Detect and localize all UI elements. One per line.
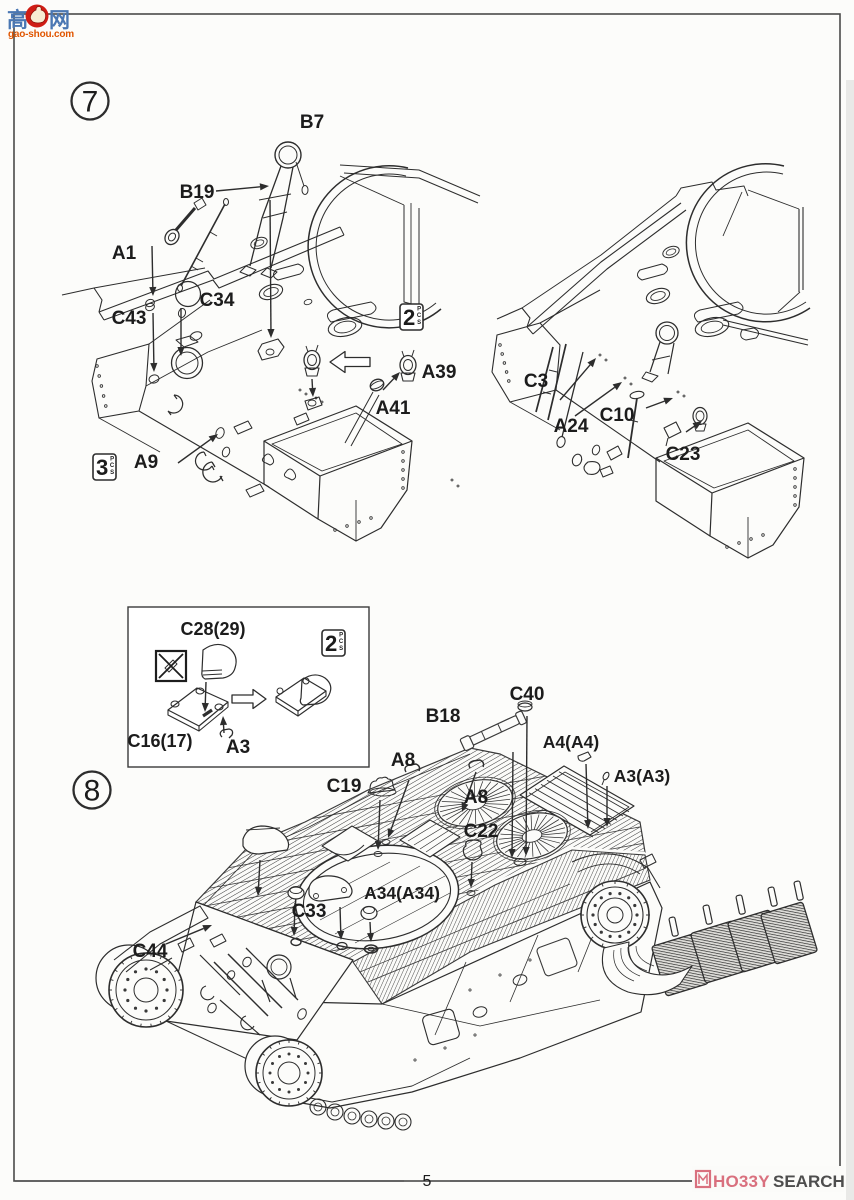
svg-text:3: 3	[96, 455, 108, 480]
svg-text:2: 2	[403, 305, 415, 330]
svg-text:S: S	[110, 470, 114, 476]
svg-text:C28(29): C28(29)	[180, 619, 245, 639]
svg-text:C: C	[339, 639, 344, 645]
svg-text:C22: C22	[464, 821, 499, 842]
svg-text:S: S	[417, 320, 421, 326]
svg-text:A39: A39	[422, 362, 457, 383]
svg-text:SEARCH: SEARCH	[773, 1172, 845, 1191]
svg-text:C33: C33	[292, 901, 327, 922]
svg-text:P: P	[110, 457, 114, 463]
svg-text:C10: C10	[600, 405, 635, 426]
svg-text:C: C	[110, 463, 115, 469]
svg-text:A8: A8	[464, 787, 488, 808]
svg-text:S: S	[339, 646, 343, 652]
svg-text:5: 5	[423, 1173, 432, 1190]
svg-text:8: 8	[84, 775, 101, 808]
svg-text:A4(A4): A4(A4)	[543, 732, 599, 752]
svg-text:C34: C34	[200, 290, 235, 311]
svg-text:gao-shou.com: gao-shou.com	[8, 29, 74, 40]
svg-text:HO33Y: HO33Y	[713, 1172, 770, 1191]
svg-text:A3: A3	[226, 737, 250, 758]
svg-text:C23: C23	[666, 444, 701, 465]
svg-text:C40: C40	[510, 684, 545, 705]
svg-text:A34(A34): A34(A34)	[364, 883, 440, 903]
svg-text:C: C	[417, 313, 422, 319]
svg-text:A24: A24	[554, 416, 589, 437]
svg-text:A3(A3): A3(A3)	[614, 766, 670, 786]
svg-text:C3: C3	[524, 371, 548, 392]
svg-text:A8: A8	[391, 750, 415, 771]
svg-text:C16(17): C16(17)	[127, 731, 192, 751]
svg-text:B7: B7	[300, 112, 324, 133]
svg-text:P: P	[339, 633, 343, 639]
svg-text:C44: C44	[133, 941, 168, 962]
svg-text:7: 7	[82, 86, 99, 119]
svg-text:C19: C19	[327, 776, 362, 797]
svg-text:B19: B19	[180, 182, 215, 203]
svg-text:C43: C43	[112, 308, 147, 329]
svg-text:A1: A1	[112, 243, 137, 264]
svg-text:A41: A41	[376, 398, 411, 419]
svg-text:A9: A9	[134, 452, 158, 473]
svg-text:P: P	[417, 307, 421, 313]
svg-text:B18: B18	[426, 706, 461, 727]
svg-text:2: 2	[325, 631, 337, 656]
